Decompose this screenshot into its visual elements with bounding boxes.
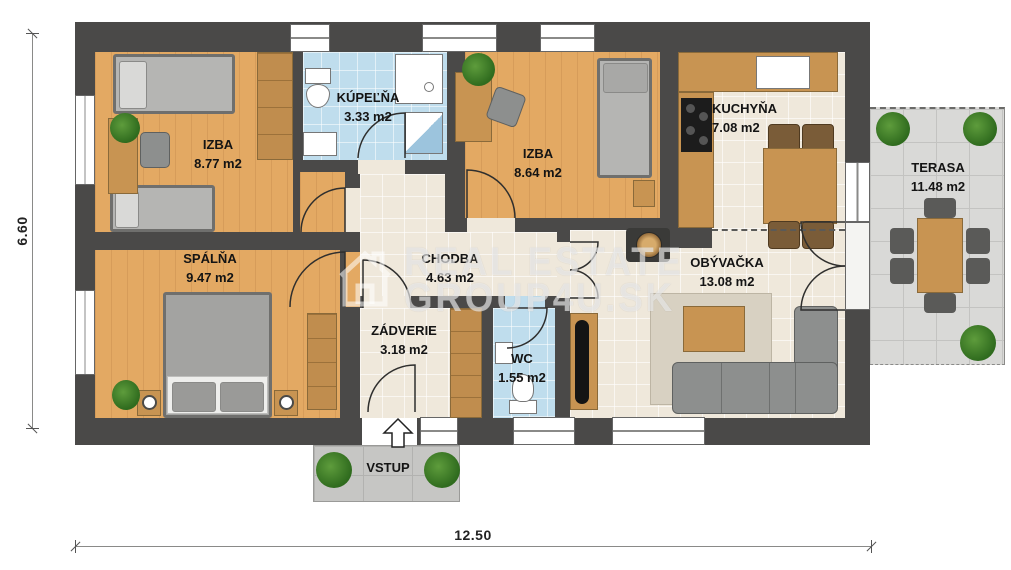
room-name: KÚPEĽŇA	[318, 88, 418, 107]
room-area: 13.08 m2	[672, 272, 782, 291]
floor-plan: IZBA 8.77 m2 KÚPEĽŇA 3.33 m2 IZBA 8.64 m…	[0, 0, 1011, 570]
door-terrace-2	[801, 266, 845, 310]
room-name: ZÁDVERIE	[354, 321, 454, 340]
room-name: KUCHYŇA	[712, 99, 796, 118]
room-name: CHODBA	[405, 249, 495, 268]
door-obyvacka-2	[570, 270, 598, 298]
door-entrance	[368, 365, 415, 412]
room-name: OBÝVAČKA	[672, 253, 782, 272]
room-area: 8.64 m2	[488, 163, 588, 182]
room-area: 3.18 m2	[354, 340, 454, 359]
room-area: 8.77 m2	[168, 154, 268, 173]
entrance-arrow-icon	[384, 419, 412, 447]
room-name: TERASA	[888, 158, 988, 177]
room-area: 9.47 m2	[160, 268, 260, 287]
label-izba1: IZBA 8.77 m2	[168, 135, 268, 173]
dimension-width-label: 12.50	[443, 527, 503, 543]
room-area: 1.55 m2	[492, 368, 552, 387]
label-obyvacka: OBÝVAČKA 13.08 m2	[672, 253, 782, 291]
label-kupelna: KÚPEĽŇA 3.33 m2	[318, 88, 418, 126]
room-area: 7.08 m2	[712, 118, 796, 137]
label-izba2: IZBA 8.64 m2	[488, 144, 588, 182]
label-wc: WC 1.55 m2	[492, 349, 552, 387]
dimension-line-left	[32, 33, 33, 429]
label-kuchyna: KUCHYŇA 7.08 m2	[712, 99, 796, 137]
label-spalna: SPÁLŇA 9.47 m2	[160, 249, 260, 287]
door-wc	[507, 308, 547, 348]
room-area: 3.33 m2	[318, 107, 418, 126]
label-terasa: TERASA 11.48 m2	[888, 158, 988, 196]
door-izba1	[301, 188, 345, 232]
room-area: 11.48 m2	[888, 177, 988, 196]
room-name: IZBA	[168, 135, 268, 154]
room-area: 4.63 m2	[405, 268, 495, 287]
label-zadverie: ZÁDVERIE 3.18 m2	[354, 321, 454, 359]
door-zadverie	[363, 260, 411, 308]
door-swing-overlay	[0, 0, 1011, 570]
entrance-label: VSTUP	[356, 458, 420, 477]
room-name: SPÁLŇA	[160, 249, 260, 268]
room-name: WC	[492, 349, 552, 368]
dimension-height-label: 6.60	[14, 201, 30, 261]
dimension-line-bottom	[75, 546, 872, 547]
door-obyvacka-1	[570, 242, 598, 270]
door-spalna	[290, 252, 345, 307]
label-chodba: CHODBA 4.63 m2	[405, 249, 495, 287]
door-terrace-1	[801, 222, 845, 266]
room-name: IZBA	[488, 144, 588, 163]
